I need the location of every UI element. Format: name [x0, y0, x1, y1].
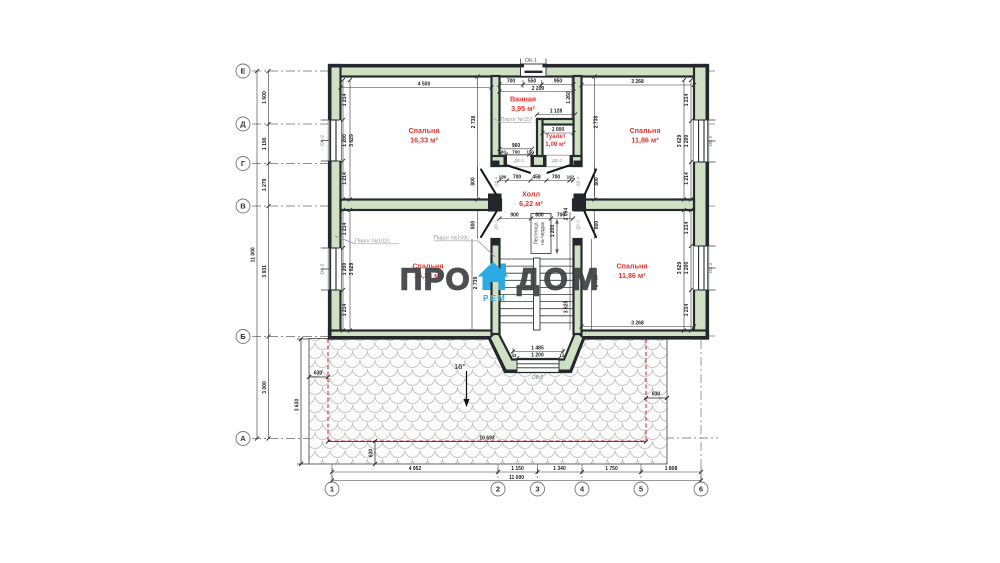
svg-text:1,00 м²: 1,00 м²: [545, 141, 565, 148]
svg-text:1 214: 1 214: [684, 94, 690, 107]
svg-text:458: 458: [532, 174, 541, 180]
svg-text:1 214: 1 214: [342, 304, 348, 317]
svg-text:180: 180: [499, 174, 507, 179]
svg-text:800: 800: [471, 177, 477, 186]
svg-text:2 094: 2 094: [564, 208, 570, 221]
svg-text:630: 630: [314, 371, 323, 377]
svg-text:3: 3: [535, 485, 539, 494]
svg-text:630: 630: [652, 392, 661, 398]
svg-text:1 200: 1 200: [531, 353, 544, 359]
svg-text:1 128: 1 128: [550, 109, 563, 115]
svg-text:Спальня: Спальня: [629, 126, 660, 135]
svg-text:1 260: 1 260: [566, 91, 572, 104]
svg-text:4 500: 4 500: [418, 82, 431, 88]
svg-text:16,33 м²: 16,33 м²: [410, 136, 438, 145]
svg-text:1 214: 1 214: [684, 222, 690, 235]
svg-text:ОК-1: ОК-1: [525, 58, 537, 64]
svg-text:1 214: 1 214: [684, 304, 690, 317]
svg-text:Д: Д: [240, 120, 246, 129]
svg-text:11,86 м²: 11,86 м²: [618, 271, 646, 280]
svg-text:1 150: 1 150: [511, 466, 524, 472]
svg-text:1 808: 1 808: [665, 466, 678, 472]
svg-text:630: 630: [369, 449, 375, 458]
svg-text:11 000: 11 000: [251, 247, 257, 262]
svg-text:3 268: 3 268: [631, 79, 644, 85]
svg-text:ДВ-1: ДВ-1: [514, 158, 525, 163]
svg-text:ДВ-3: ДВ-3: [576, 220, 581, 230]
svg-text:150: 150: [527, 149, 535, 154]
svg-text:3,95 м²: 3,95 м²: [511, 104, 535, 113]
svg-text:43: 43: [512, 353, 517, 358]
svg-text:1 214: 1 214: [684, 172, 690, 185]
svg-text:14: 14: [560, 353, 565, 358]
svg-text:162: 162: [567, 174, 575, 179]
svg-text:1 200: 1 200: [684, 262, 690, 275]
svg-text:700: 700: [552, 174, 561, 180]
svg-text:ОК-2: ОК-2: [319, 263, 325, 274]
svg-text:11,86 м²: 11,86 м²: [631, 136, 659, 145]
svg-text:2: 2: [496, 485, 500, 494]
svg-text:Лестница: Лестница: [534, 222, 540, 244]
svg-text:ПРО: ПРО: [400, 262, 471, 297]
svg-text:1 485: 1 485: [531, 346, 544, 352]
svg-text:А: А: [240, 434, 246, 443]
svg-text:1 214: 1 214: [342, 172, 348, 185]
svg-text:800: 800: [594, 177, 600, 186]
svg-text:1 190: 1 190: [262, 137, 268, 150]
svg-text:Холл: Холл: [522, 190, 540, 199]
svg-text:ДВ-4: ДВ-4: [494, 176, 499, 186]
svg-text:В: В: [240, 202, 246, 211]
svg-text:2 200: 2 200: [532, 86, 545, 92]
svg-text:1 340: 1 340: [553, 466, 566, 472]
svg-text:Спальня: Спальня: [616, 262, 647, 271]
svg-text:900: 900: [510, 212, 519, 218]
svg-text:ДВ-4: ДВ-4: [576, 176, 581, 186]
svg-text:3 629: 3 629: [677, 262, 683, 275]
svg-text:2 739: 2 739: [473, 277, 479, 290]
svg-text:6: 6: [699, 485, 703, 494]
svg-text:800: 800: [471, 221, 477, 230]
svg-text:Г: Г: [241, 159, 246, 168]
svg-text:3 630: 3 630: [295, 399, 301, 412]
svg-text:1 200: 1 200: [684, 135, 690, 148]
svg-text:800: 800: [594, 221, 600, 230]
svg-text:10 693: 10 693: [479, 436, 495, 442]
svg-text:3 625: 3 625: [564, 301, 570, 314]
svg-text:6,22 м²: 6,22 м²: [519, 199, 543, 208]
svg-text:700: 700: [507, 79, 516, 85]
svg-text:ОК-2: ОК-2: [319, 135, 325, 146]
svg-text:Б: Б: [240, 332, 246, 341]
svg-text:3 629: 3 629: [677, 135, 683, 148]
svg-text:11 000: 11 000: [509, 475, 524, 481]
svg-text:3 629: 3 629: [349, 263, 355, 276]
svg-text:1 200: 1 200: [342, 134, 348, 147]
svg-text:ОК-2: ОК-2: [708, 262, 714, 273]
svg-text:2 738: 2 738: [471, 116, 477, 129]
svg-text:700: 700: [513, 174, 522, 180]
svg-text:600: 600: [535, 212, 544, 218]
svg-text:1 214: 1 214: [342, 223, 348, 236]
svg-text:на чердак: на чердак: [540, 221, 546, 245]
svg-text:1 200: 1 200: [342, 263, 348, 276]
svg-text:16°: 16°: [454, 362, 465, 371]
svg-text:950: 950: [554, 79, 563, 85]
svg-text:1 214: 1 214: [342, 94, 348, 107]
svg-text:1 279: 1 279: [262, 178, 268, 191]
svg-text:4 952: 4 952: [409, 466, 422, 472]
svg-text:ДОМ: ДОМ: [517, 262, 603, 297]
svg-text:ОК-2: ОК-2: [532, 375, 544, 381]
svg-text:960: 960: [512, 143, 521, 149]
svg-text:РЕМ: РЕМ: [483, 294, 507, 303]
svg-text:3 629: 3 629: [349, 134, 355, 147]
svg-text:3 931: 3 931: [262, 265, 268, 278]
svg-text:550: 550: [528, 79, 537, 85]
svg-text:2 738: 2 738: [594, 116, 600, 129]
svg-text:ОК-2: ОК-2: [708, 135, 714, 146]
svg-text:1 200: 1 200: [550, 225, 556, 238]
svg-text:3 000: 3 000: [262, 381, 268, 394]
svg-text:3 268: 3 268: [631, 321, 644, 327]
svg-text:80: 80: [501, 149, 506, 154]
svg-text:ДВ-3: ДВ-3: [494, 220, 499, 230]
svg-text:700: 700: [512, 150, 520, 155]
svg-text:1 750: 1 750: [605, 466, 618, 472]
svg-text:1 600: 1 600: [262, 91, 268, 104]
svg-text:Спальня: Спальня: [408, 126, 439, 135]
svg-text:Ванная: Ванная: [510, 95, 536, 104]
svg-text:Е: Е: [240, 67, 245, 76]
svg-text:Туалет: Туалет: [545, 133, 566, 140]
svg-text:ДВ-2: ДВ-2: [552, 158, 563, 163]
